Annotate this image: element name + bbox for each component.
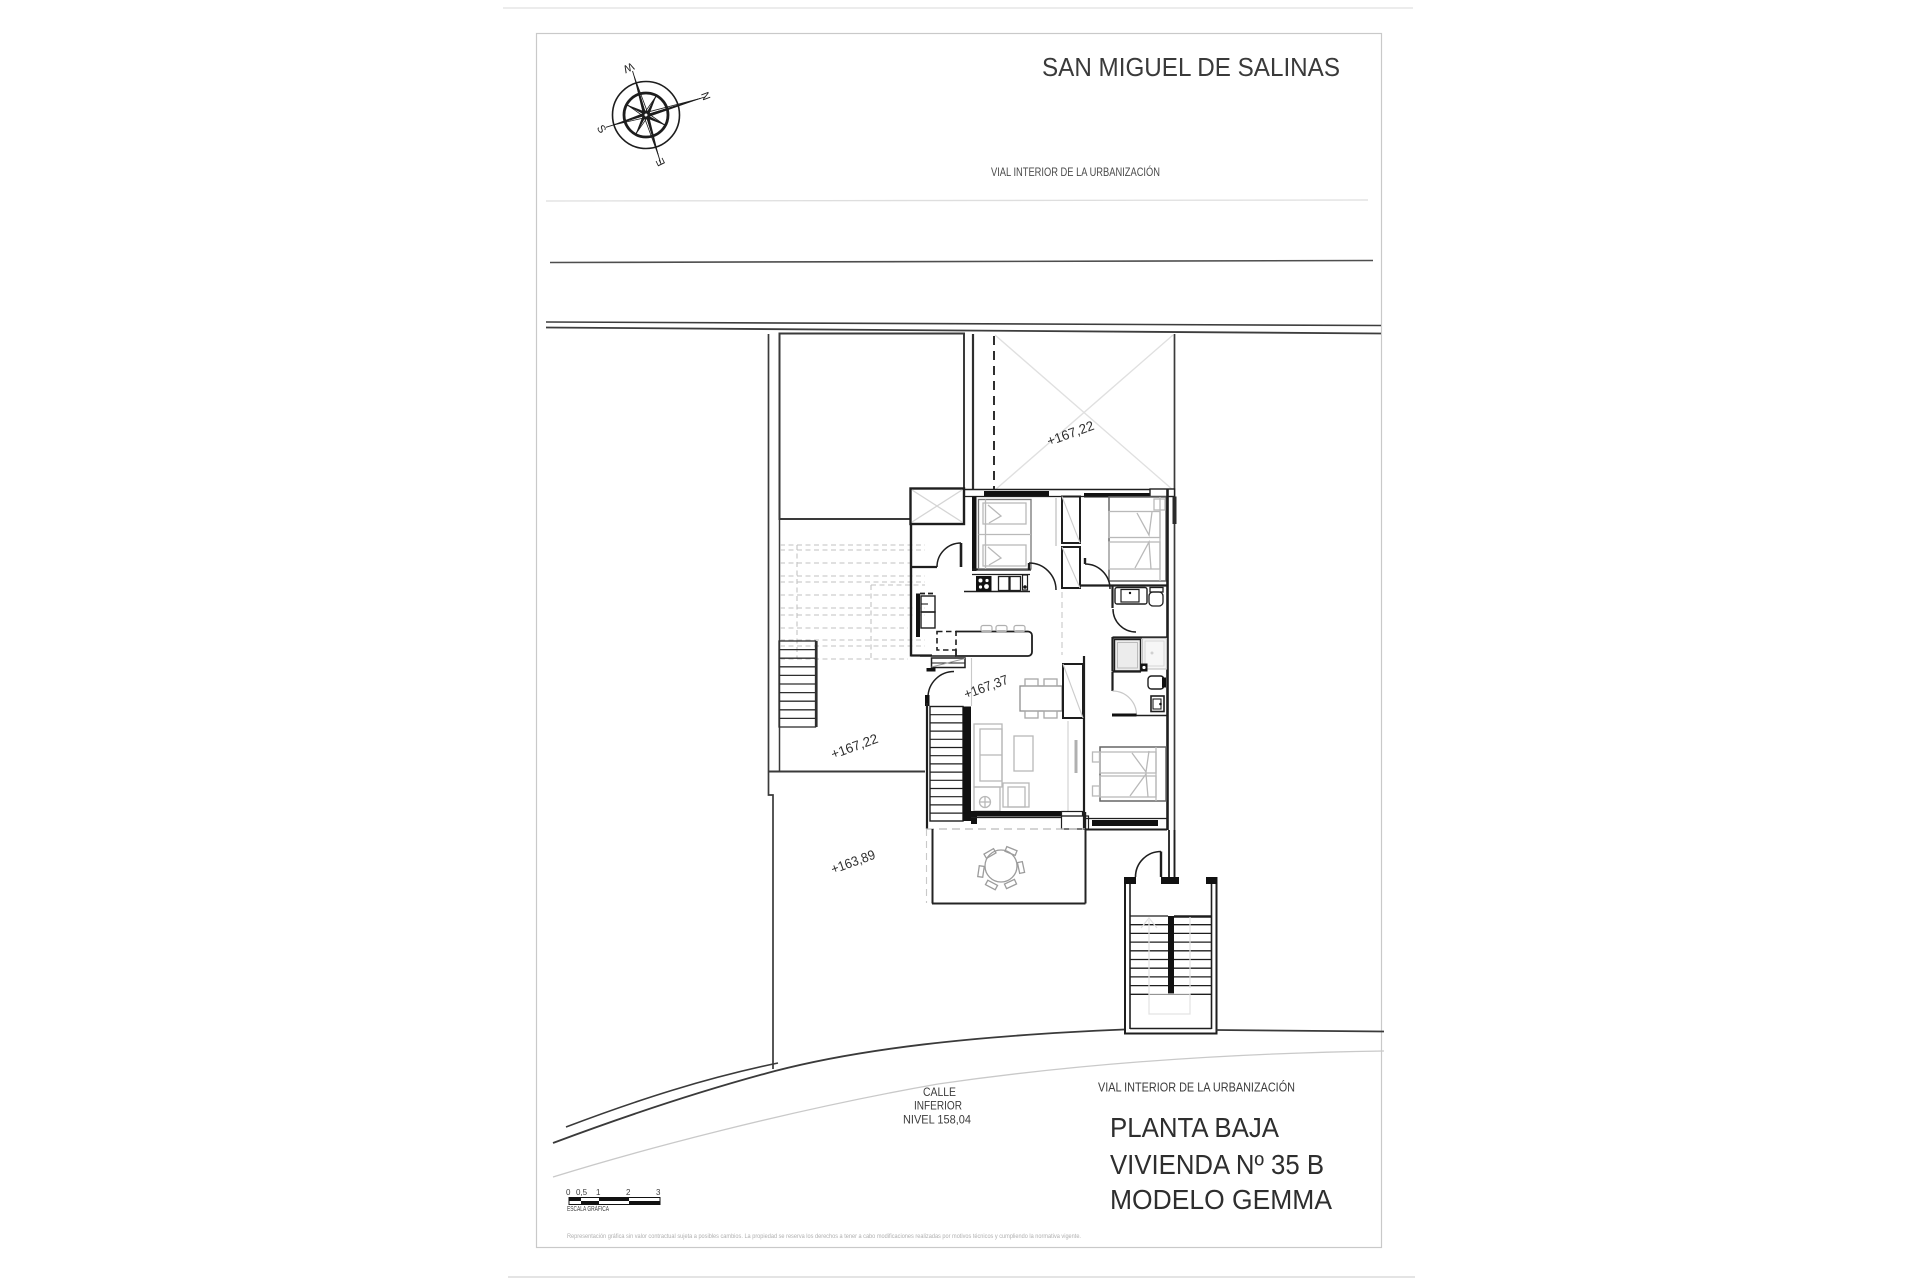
svg-text:VIAL INTERIOR DE LA URBANIZACI: VIAL INTERIOR DE LA URBANIZACIÓN (1098, 1080, 1295, 1095)
svg-text:1: 1 (596, 1188, 601, 1197)
svg-text:3: 3 (656, 1188, 661, 1197)
svg-text:NIVEL 158,04: NIVEL 158,04 (903, 1115, 972, 1127)
svg-text:VIVIENDA Nº 35 B: VIVIENDA Nº 35 B (1110, 1149, 1324, 1180)
svg-text:CALLE: CALLE (923, 1087, 956, 1099)
svg-text:Representación gráfica sin val: Representación gráfica sin valor contrac… (567, 1233, 1081, 1240)
svg-text:ESCALA GRÁFICA: ESCALA GRÁFICA (567, 1204, 609, 1213)
svg-text:INFERIOR: INFERIOR (914, 1101, 962, 1113)
svg-text:SAN MIGUEL DE SALINAS: SAN MIGUEL DE SALINAS (1042, 54, 1340, 82)
svg-text:MODELO GEMMA: MODELO GEMMA (1110, 1184, 1333, 1215)
svg-text:0: 0 (566, 1188, 571, 1197)
svg-text:VIAL INTERIOR DE LA URBANIZACI: VIAL INTERIOR DE LA URBANIZACIÓN (991, 166, 1160, 179)
svg-text:0,5: 0,5 (576, 1188, 588, 1197)
svg-text:PLANTA BAJA: PLANTA BAJA (1110, 1112, 1280, 1143)
svg-text:2: 2 (626, 1188, 631, 1197)
